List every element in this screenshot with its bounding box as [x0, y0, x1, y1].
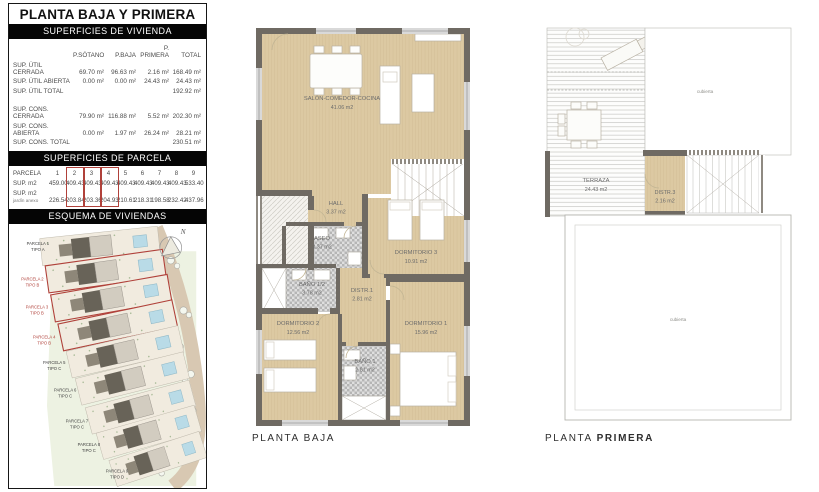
svg-text:TIPO B: TIPO B: [30, 311, 44, 316]
room-label: DISTR.1: [351, 288, 373, 294]
table-row: SUP. m2 jardín anexo 226.54 203.84 203.3…: [13, 190, 202, 204]
room-label: SALÓN-COMEDOR-COCINA: [304, 95, 380, 102]
svg-text:TIPO C: TIPO C: [82, 448, 96, 453]
room-label: TERRAZA: [582, 178, 609, 184]
table-row: PARCELA 1 2 3 4 5 6 7 8 9: [13, 170, 202, 177]
room-area: 24.43 m2: [585, 187, 607, 193]
roof-area-top: [645, 28, 791, 155]
table-row: SUP. ÚTIL CERRADA 69.70 m² 96.63 m² 2.16…: [13, 62, 202, 76]
svg-text:TIPO C: TIPO C: [70, 424, 84, 429]
parcel-label: PARCELA 2: [21, 277, 44, 282]
room-area: 3.37 m2: [312, 245, 331, 251]
room-area: 2.81 m2: [355, 368, 374, 374]
data-panel: PLANTA BAJA Y PRIMERA SUPERFICIES DE VIV…: [8, 3, 207, 489]
svg-text:TIPO B: TIPO B: [37, 341, 51, 346]
room-area: 2.16 m2: [655, 199, 674, 205]
plan-caption-primera: PLANTA PRIMERA: [545, 433, 654, 444]
parcel-label: PARCELA 4: [33, 335, 56, 340]
parcela-table: PARCELA 1 2 3 4 5 6 7 8 9 SUP. m2 459.00…: [9, 166, 206, 209]
col-header: TOTAL: [170, 52, 202, 59]
room-label: HALL: [329, 201, 344, 207]
col-header: P.SÓTANO: [73, 52, 105, 59]
room-area: 15.96 m2: [415, 330, 437, 336]
col-header: P.BAJA: [105, 52, 137, 59]
table-row: SUP. m2 459.00 409.43 409.43 409.43 409.…: [13, 180, 202, 187]
room-label: DORMITORIO 1: [405, 321, 447, 327]
parcel-label: PARCELA 9: [106, 469, 129, 474]
room-area: 10.91 m2: [405, 259, 427, 265]
room-label: BAÑO 1/2: [299, 281, 325, 288]
table-row: SUP. CONS. ABIERTA 0.00 m² 1.97 m² 26.24…: [13, 123, 202, 137]
parcel-label: PARCELA 8: [78, 442, 101, 447]
col-header: P. PRIMERA: [137, 45, 170, 59]
room-area: 12.56 m2: [287, 330, 309, 336]
site-plan: N PARCELA 1 TIPO A PARCELA 2 TIPO B PARC…: [9, 224, 206, 488]
room-area: 41.06 m2: [331, 105, 353, 111]
section-header-esquema: ESQUEMA DE VIVIENDAS: [9, 209, 206, 224]
parcel-label: PARCELA 7: [66, 418, 89, 423]
svg-text:TIPO B: TIPO B: [26, 282, 40, 287]
room-area: 2.81 m2: [352, 297, 371, 303]
table-row: SUP. CONS. TOTAL 230.51 m²: [13, 139, 202, 146]
sheet-title: PLANTA BAJA Y PRIMERA: [9, 4, 206, 24]
vivienda-header-row: P.SÓTANO P.BAJA P. PRIMERA TOTAL: [13, 45, 202, 59]
room-label: ASEO: [314, 236, 331, 242]
vivienda-table: P.SÓTANO P.BAJA P. PRIMERA TOTAL SUP. ÚT…: [9, 39, 206, 151]
parcel-label: PARCELA 5: [43, 360, 66, 365]
parcel-label: PARCELA 1: [27, 241, 50, 246]
svg-text:TIPO D: TIPO D: [110, 474, 124, 479]
jardin-sublabel: jardín anexo: [13, 198, 38, 203]
roof-label: cubierta: [670, 317, 687, 322]
plan-caption-baja: PLANTA BAJA: [252, 433, 335, 444]
dining-table: [310, 46, 362, 95]
room-area: 3.78 m2: [302, 291, 321, 297]
room-label: DISTR.3: [655, 190, 676, 196]
section-header-parcela: SUPERFICIES DE PARCELA: [9, 151, 206, 166]
north-label: N: [180, 228, 187, 236]
room-label: BAÑO 1: [354, 358, 375, 365]
room-label: DORMITORIO 2: [277, 321, 319, 327]
svg-text:TIPO C: TIPO C: [47, 366, 61, 371]
svg-text:TIPO A: TIPO A: [31, 247, 45, 252]
planta-primera-plan: cubierta cubierta TERRAZA 24.43 m2 DISTR…: [545, 24, 797, 432]
room-label: DORMITORIO 3: [395, 250, 437, 256]
parcel-label: PARCELA 6: [54, 388, 77, 393]
roof-label: cubierta: [697, 89, 714, 94]
planta-baja-plan: SALÓN-COMEDOR-COCINA 41.06 m2 HALL 3.37 …: [252, 24, 474, 432]
table-row: SUP. ÚTIL ABIERTA 0.00 m² 0.00 m² 24.43 …: [13, 78, 202, 85]
parcel-label: PARCELA 3: [26, 305, 49, 310]
table-row: SUP. ÚTIL TOTAL 192.92 m²: [13, 88, 202, 95]
table-row: SUP. CONS. CERRADA 79.90 m² 116.88 m² 5.…: [13, 106, 202, 120]
distr3-floor: [645, 155, 685, 215]
room-area: 3.37 m2: [326, 210, 345, 216]
section-header-vivienda: SUPERFICIES DE VIVIENDA: [9, 24, 206, 39]
svg-text:TIPO C: TIPO C: [58, 393, 72, 398]
